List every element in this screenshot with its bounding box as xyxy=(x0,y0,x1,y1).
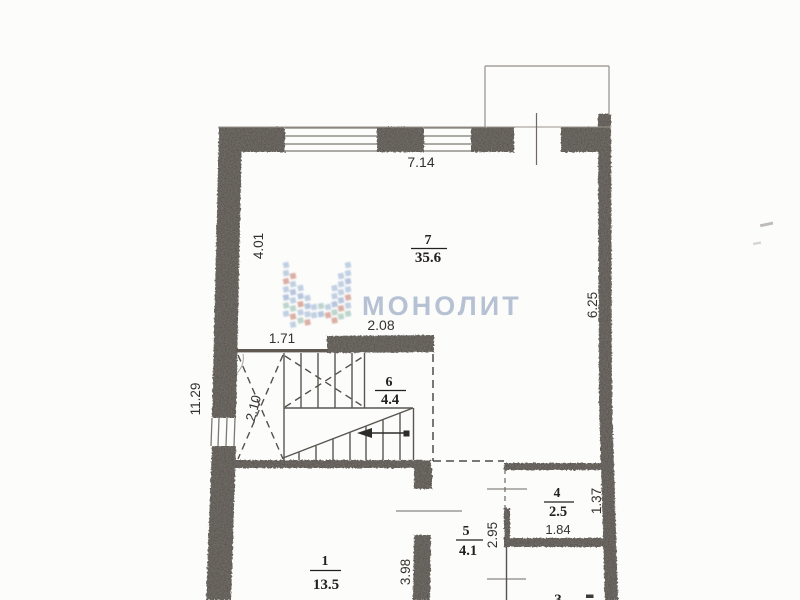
svg-text:6.25: 6.25 xyxy=(585,292,600,318)
svg-text:3: 3 xyxy=(554,592,562,600)
svg-text:1.84: 1.84 xyxy=(545,522,570,537)
svg-text:2.08: 2.08 xyxy=(367,317,394,333)
svg-text:7.14: 7.14 xyxy=(407,154,434,170)
svg-text:3.98: 3.98 xyxy=(398,559,413,585)
svg-text:2.95: 2.95 xyxy=(485,522,500,548)
svg-text:1.37: 1.37 xyxy=(589,488,604,514)
svg-text:4.01: 4.01 xyxy=(251,233,266,259)
svg-text:1.71: 1.71 xyxy=(269,331,295,346)
svg-text:13.5: 13.5 xyxy=(313,577,339,593)
svg-text:2.5: 2.5 xyxy=(549,504,567,520)
svg-text:6: 6 xyxy=(386,375,393,390)
svg-text:7: 7 xyxy=(425,233,432,248)
svg-text:4.1: 4.1 xyxy=(459,543,477,559)
svg-text:1: 1 xyxy=(322,554,329,569)
svg-text:5: 5 xyxy=(463,524,470,539)
svg-text:2.10: 2.10 xyxy=(243,393,264,422)
svg-text:4.4: 4.4 xyxy=(381,392,399,408)
svg-text:35.6: 35.6 xyxy=(415,250,442,266)
svg-text:11.29: 11.29 xyxy=(188,383,203,416)
svg-text:4: 4 xyxy=(554,485,561,500)
